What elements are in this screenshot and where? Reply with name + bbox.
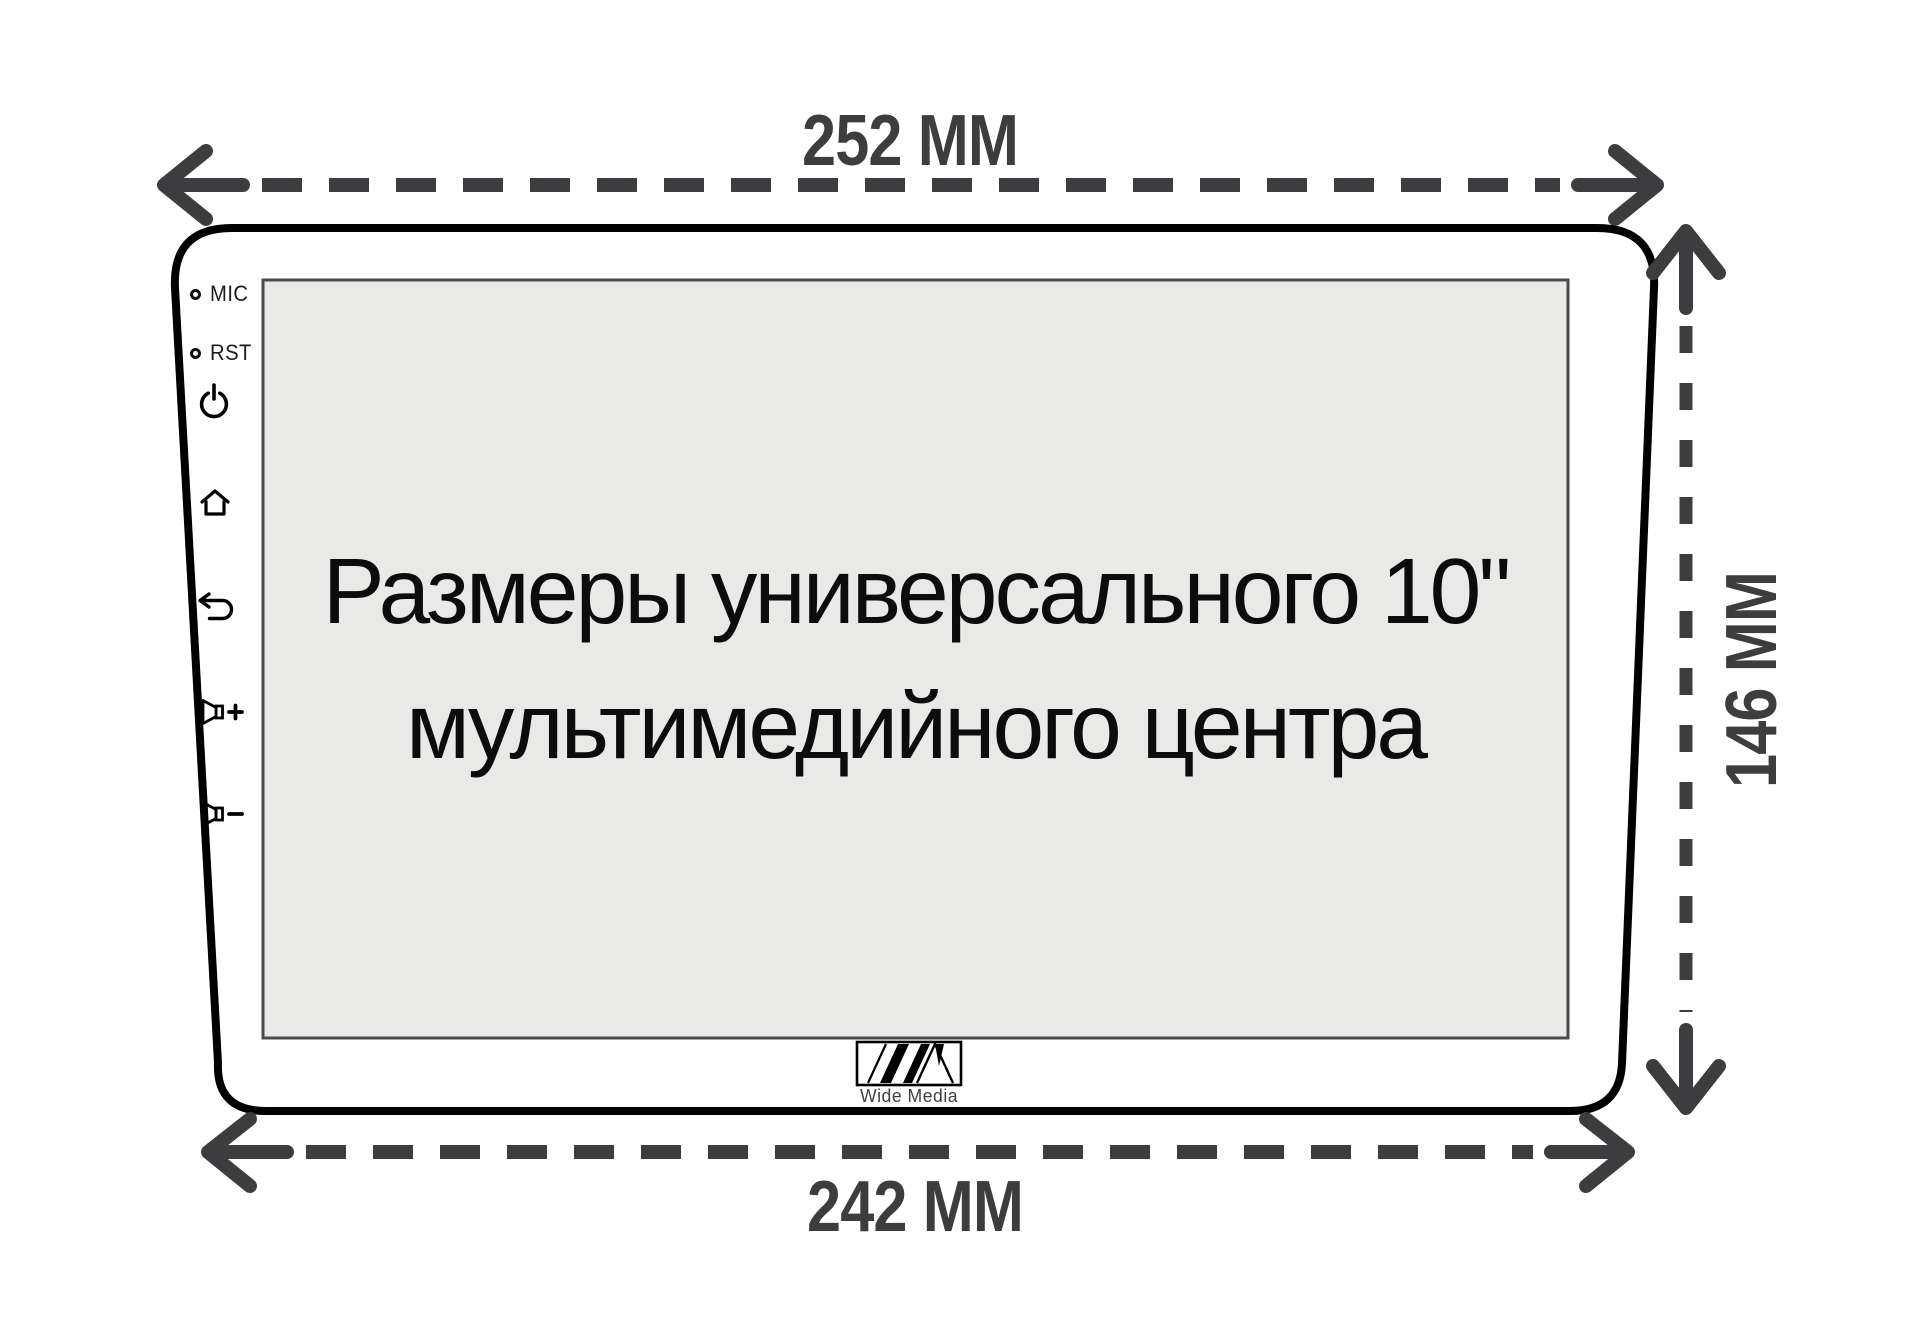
reset-control: RST <box>190 340 256 366</box>
mic-control: MIC <box>190 281 252 307</box>
bottom-width-label: 242 MM <box>807 1166 1023 1248</box>
volume-down-icon <box>200 799 250 829</box>
volume-up-icon <box>200 697 250 727</box>
brand-logo-text: Wide Media <box>860 1086 958 1107</box>
top-width-label: 252 MM <box>802 100 1018 182</box>
screen-caption: Размеры универсального 10" мультимедийно… <box>263 280 1568 1038</box>
back-icon <box>196 591 236 621</box>
home-icon <box>198 485 232 519</box>
reset-label: RST <box>210 340 252 366</box>
wide-media-logo-icon <box>854 1040 964 1088</box>
screen-caption-line1: Размеры универсального 10" <box>323 524 1509 659</box>
brand-logo: Wide Media <box>852 1040 966 1107</box>
screen-caption-line2: мультимедийного центра <box>406 659 1425 794</box>
multimedia-center-dimension-diagram: 252 MM 242 MM 146 MM Размеры универсальн… <box>0 0 1920 1333</box>
right-height-label: 146 MM <box>1711 572 1793 788</box>
power-icon <box>196 382 232 420</box>
reset-hole-icon <box>190 348 201 359</box>
mic-hole-icon <box>190 289 201 300</box>
right-height-arrow <box>1653 231 1719 1108</box>
mic-label: MIC <box>210 281 248 307</box>
